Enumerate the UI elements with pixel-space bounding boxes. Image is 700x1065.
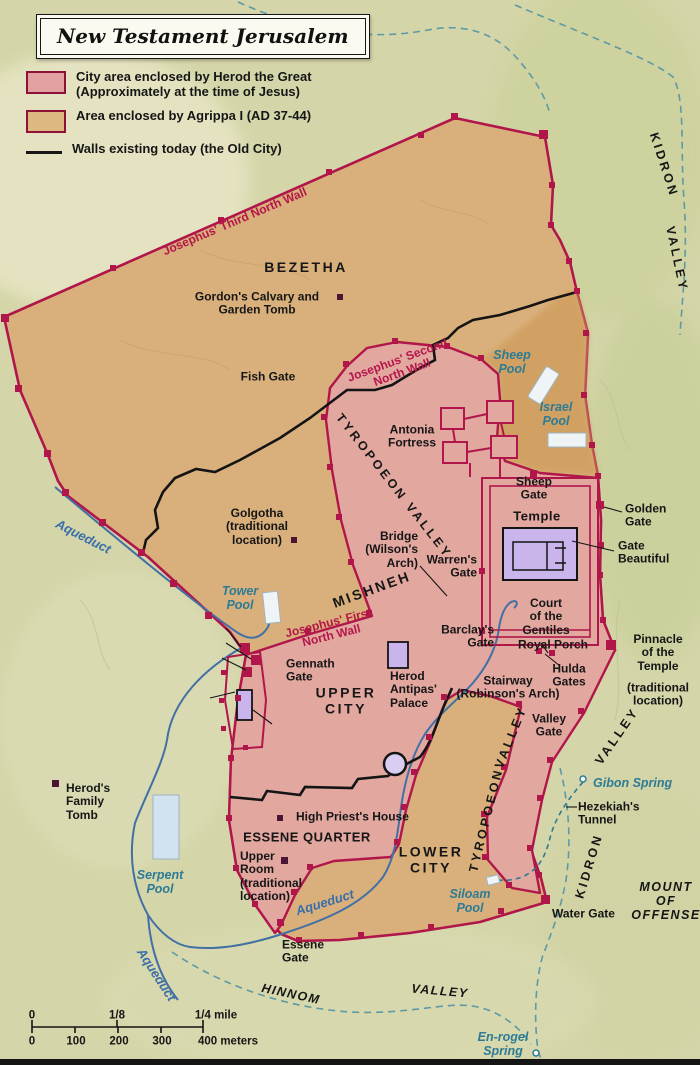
- herod-pink-swatch: [26, 71, 66, 94]
- label-scale-meter-0: 0: [29, 1036, 35, 1049]
- label-en-rogel-spring: En-rogel Spring: [478, 1030, 529, 1058]
- label-court-of-the-gentiles: Court of the Gentiles: [522, 597, 569, 637]
- title-box: New Testament Jerusalem: [36, 14, 370, 59]
- label-sheep-gate: Sheep Gate: [516, 476, 552, 503]
- label-essene-quarter: ESSENE QUARTER: [243, 831, 371, 846]
- label-tyropoeon-valley-lower: VALLEY: [492, 704, 530, 771]
- label-antonia-fortress: Antonia Fortress: [388, 424, 436, 451]
- legend-item-herod-area: City area enclosed by Herod the Great (A…: [26, 70, 386, 100]
- label-pinnacle-of-the-temple: Pinnacle of the Temple: [633, 633, 682, 673]
- label-kidron-lower: KIDRON: [572, 832, 605, 900]
- label-water-gate: Water Gate: [552, 907, 615, 920]
- legend: City area enclosed by Herod the Great (A…: [26, 70, 386, 166]
- label-tower-pool: Tower Pool: [222, 584, 258, 612]
- label-scale-mile-0: 0: [29, 1010, 35, 1023]
- label-fish-gate: Fish Gate: [241, 370, 296, 383]
- label-upper-city: UPPER CITY: [316, 685, 377, 716]
- label-aqueduct-nw: Aqueduct: [53, 517, 113, 557]
- new-testament-jerusalem-map: Josephus' Third North WallBEZETHAGordon'…: [0, 0, 700, 1065]
- label-hinnom: HINNOM: [260, 981, 321, 1007]
- label-aqueduct-sw: Aqueduct: [134, 946, 179, 1004]
- label-gate-beautiful: Gate Beautiful: [618, 540, 669, 567]
- label-barclays-gate: Barclay's Gate: [441, 624, 494, 651]
- label-essene-gate: Essene Gate: [282, 939, 324, 966]
- label-scale-meter-400: 400 meters: [198, 1036, 258, 1049]
- label-kidron-valley-lower: VALLEY: [592, 705, 642, 767]
- label-gennath-gate: Gennath Gate: [286, 658, 335, 685]
- label-valley-gate: Valley Gate: [532, 713, 566, 740]
- label-aqueduct-south: Aqueduct: [294, 887, 356, 918]
- legend-label: City area enclosed by Herod the Great (A…: [76, 70, 312, 100]
- label-stairway-robinsons-arch: Stairway (Robinson's Arch): [456, 675, 559, 702]
- label-high-priests-house: High Priest's House: [296, 810, 409, 823]
- label-upper-room: Upper Room (traditional location): [240, 850, 302, 904]
- label-royal-porch: Royal Porch: [518, 638, 588, 651]
- agrippa-tan-swatch: [26, 110, 66, 133]
- label-kidron-valley-upper: VALLEY: [663, 225, 690, 293]
- label-bridge-wilsons-arch: Bridge (Wilson's Arch): [365, 530, 418, 570]
- label-gordons-calvary: Gordon's Calvary and Garden Tomb: [195, 291, 319, 318]
- label-mishneh: MISHNEH: [331, 569, 413, 612]
- label-bezetha: BEZETHA: [264, 260, 348, 276]
- label-serpent-pool: Serpent Pool: [137, 868, 184, 896]
- bottom-border-bar: [0, 1059, 700, 1065]
- label-hinnom-valley: VALLEY: [411, 982, 469, 1001]
- label-mount-of-offense: MOUNT OF OFFENSE: [631, 880, 700, 922]
- label-sheep-pool: Sheep Pool: [493, 348, 531, 376]
- map-title: New Testament Jerusalem: [57, 24, 349, 48]
- legend-item-old-city-walls: Walls existing today (the Old City): [26, 142, 386, 157]
- label-herods-family-tomb: Herod's Family Tomb: [66, 782, 110, 822]
- label-scale-meter-200: 200: [109, 1036, 128, 1049]
- label-siloam-pool: Siloam Pool: [450, 887, 491, 915]
- label-golden-gate: Golden Gate: [625, 503, 666, 530]
- old-city-wall-line-swatch: [26, 151, 62, 154]
- label-josephus-third-north-wall: Josephus' Third North Wall: [161, 186, 309, 259]
- label-josephus-second-north-wall: Josephus' Second North Wall: [346, 336, 454, 397]
- label-israel-pool: Israel Pool: [540, 400, 573, 428]
- label-josephus-first-north-wall: Josephus' First North Wall: [284, 606, 376, 653]
- label-herod-antipas-palace: Herod Antipas' Palace: [390, 670, 437, 710]
- label-scale-meter-100: 100: [66, 1036, 85, 1049]
- label-scale-mile-eighth: 1/8: [109, 1010, 125, 1023]
- legend-label: Walls existing today (the Old City): [72, 142, 282, 157]
- label-pinnacle-note: (traditional location): [627, 682, 689, 709]
- label-tyropoeon-lower: TYROPOEON: [466, 766, 505, 873]
- label-hulda-gates: Hulda Gates: [552, 663, 585, 690]
- label-scale-mile-quarter: 1/4 mile: [195, 1010, 237, 1023]
- legend-label: Area enclosed by Agrippa I (AD 37-44): [76, 109, 311, 124]
- label-kidron-upper: KIDRON: [647, 131, 681, 199]
- label-golgotha: Golgotha (traditional location): [226, 507, 288, 547]
- label-gibon-spring: Gibon Spring: [593, 776, 672, 790]
- label-scale-meter-300: 300: [152, 1036, 171, 1049]
- label-temple: Temple: [513, 510, 561, 525]
- label-hezekiahs-tunnel: Hezekiah's Tunnel: [578, 801, 640, 828]
- label-lower-city: LOWER CITY: [399, 844, 464, 875]
- label-tyropoeon-valley-upper: TYROPOEON VALLEY: [333, 411, 455, 561]
- label-warrens-gate: Warren's Gate: [427, 554, 477, 581]
- legend-item-agrippa-area: Area enclosed by Agrippa I (AD 37-44): [26, 109, 386, 133]
